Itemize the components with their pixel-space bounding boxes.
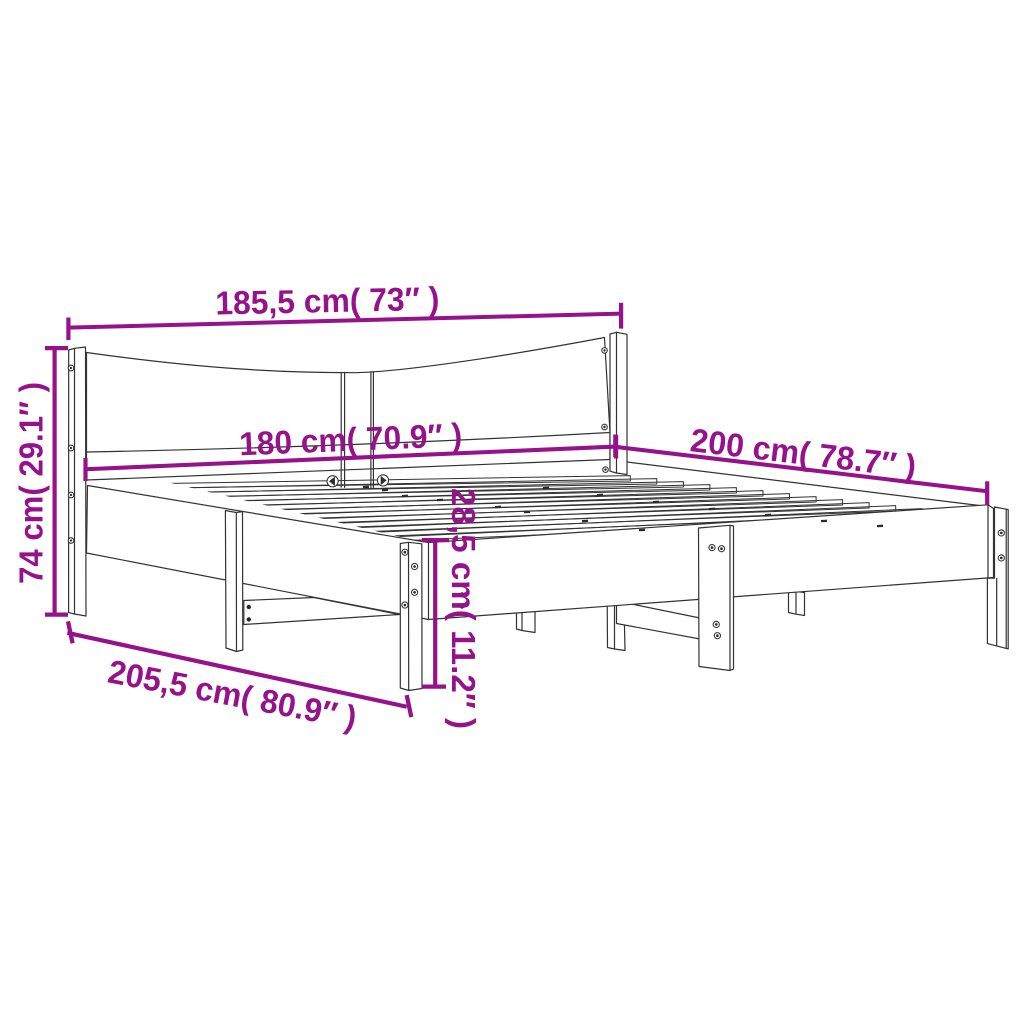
svg-text:200 cm( 78.7″ ): 200 cm( 78.7″ ) (688, 421, 918, 485)
svg-text:28,5 cm( 11.2″ ): 28,5 cm( 11.2″ ) (445, 488, 482, 729)
svg-text:185,5 cm( 73″ ): 185,5 cm( 73″ ) (215, 280, 440, 322)
svg-text:74 cm( 29.1″ ): 74 cm( 29.1″ ) (13, 382, 50, 584)
svg-text:205,5 cm( 80.9″ ): 205,5 cm( 80.9″ ) (105, 653, 359, 737)
